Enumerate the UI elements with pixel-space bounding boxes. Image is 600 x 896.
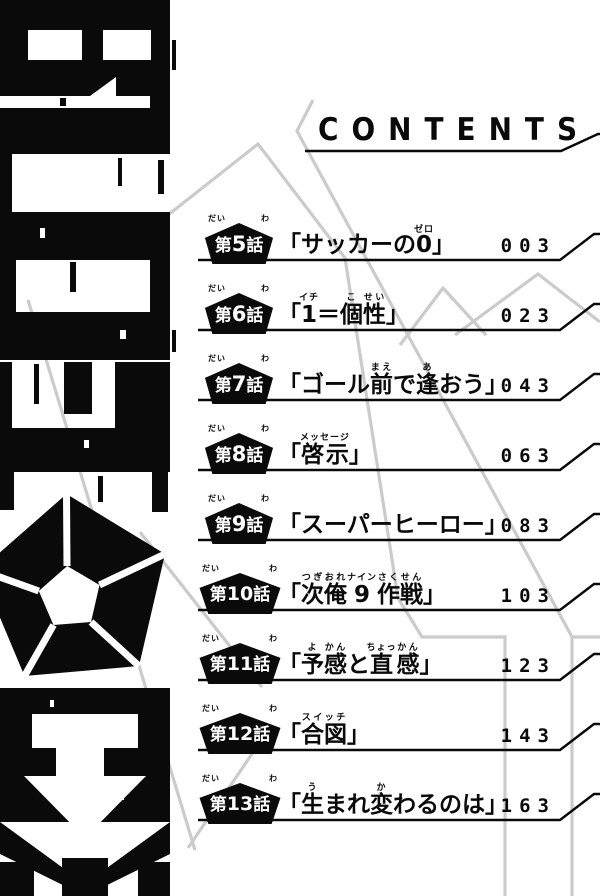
toc-entry: だい わ 第8話 「啓示メッセージ」 063 <box>198 420 600 476</box>
chapter-title: 「次つぎ俺おれ9ナイン作さく戦せん」 <box>278 573 446 607</box>
chapter-label: 第8話 <box>202 437 276 473</box>
chapter-label: 第11話 <box>196 647 284 682</box>
chapter-label: 第13話 <box>196 787 284 822</box>
chapter-title: 「ゴール前まえで逢あおう」 <box>278 363 508 397</box>
chapter-badge: だい わ 第9話 <box>202 494 276 544</box>
chapter-list: だい わ 第5話 「サッカーの0ゼロ」 003 だい わ 第6話 「1イチ＝個こ… <box>0 0 600 896</box>
chapter-badge: だい わ 第13話 <box>196 774 284 824</box>
chapter-badge: だい わ 第5話 <box>202 214 276 264</box>
chapter-badge: だい わ 第11話 <box>196 634 284 684</box>
chapter-label: 第10話 <box>196 577 284 612</box>
chapter-badge: だい わ 第10話 <box>196 564 284 614</box>
toc-entry: だい わ 第12話 「合図スイッチ」 143 <box>198 700 600 756</box>
chapter-label: 第12話 <box>196 717 284 752</box>
chapter-title: 「スーパーヒーロー」 <box>278 514 508 537</box>
chapter-label: 第9話 <box>202 507 276 543</box>
page-number: 123 <box>501 657 556 676</box>
chapter-title: 「予よ感かんと直ちょっ感かん」 <box>278 643 443 677</box>
chapter-title: 「1イチ＝個こ性せい」 <box>278 293 409 327</box>
chapter-label: 第5話 <box>202 227 276 263</box>
toc-entry: だい わ 第11話 「予よ感かんと直ちょっ感かん」 123 <box>198 630 600 686</box>
page-number: 163 <box>501 797 556 816</box>
page-number: 143 <box>501 727 556 746</box>
chapter-title: 「生うまれ変かわるのは」 <box>278 783 508 817</box>
toc-entry: だい わ 第13話 「生うまれ変かわるのは」 163 <box>198 770 600 826</box>
page-number: 063 <box>501 447 556 466</box>
page-number: 003 <box>501 237 556 256</box>
chapter-badge: だい わ 第8話 <box>202 424 276 474</box>
chapter-badge: だい わ 第7話 <box>202 354 276 404</box>
page-number: 103 <box>501 587 556 606</box>
toc-entry: だい わ 第9話 「スーパーヒーロー」 083 <box>198 490 600 546</box>
chapter-title: 「啓示メッセージ」 <box>278 433 372 467</box>
toc-entry: だい わ 第7話 「ゴール前まえで逢あおう」 043 <box>198 350 600 406</box>
chapter-title: 「合図スイッチ」 <box>278 713 370 747</box>
chapter-title: 「サッカーの0ゼロ」 <box>278 225 455 257</box>
chapter-badge: だい わ 第6話 <box>202 284 276 334</box>
page-number: 023 <box>501 307 556 326</box>
chapter-label: 第7話 <box>202 367 276 403</box>
toc-entry: だい わ 第5話 「サッカーの0ゼロ」 003 <box>198 210 600 266</box>
toc-entry: だい わ 第6話 「1イチ＝個こ性せい」 023 <box>198 280 600 336</box>
toc-entry: だい わ 第10話 「次つぎ俺おれ9ナイン作さく戦せん」 103 <box>198 560 600 616</box>
page-number: 083 <box>501 517 556 536</box>
page-number: 043 <box>501 377 556 396</box>
chapter-label: 第6話 <box>202 297 276 333</box>
chapter-badge: だい わ 第12話 <box>196 704 284 754</box>
